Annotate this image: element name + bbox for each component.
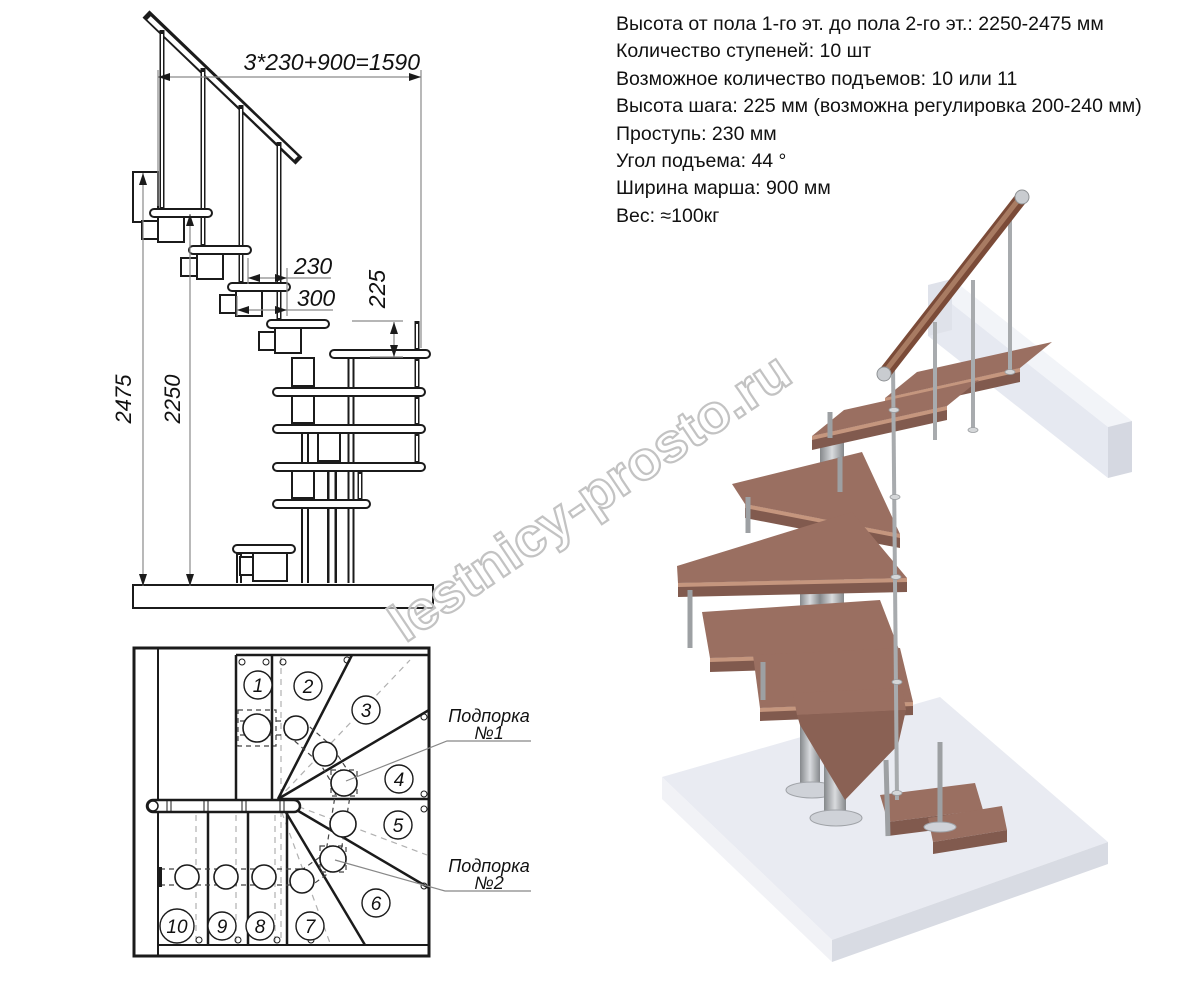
step-number-5: 5	[393, 816, 404, 837]
watermark-text: lestnicy-prosto.ru	[378, 341, 801, 654]
plan-view: 1 2 3 4 5 6 7 8 9 10 Подпорка №1 Подпорк…	[134, 648, 531, 956]
dimension-label-230: 230	[293, 253, 333, 279]
elevation-bottom-step	[233, 545, 295, 583]
elevation-view: 3*230+900=1590 2475 2250 230 300 225	[111, 14, 433, 608]
screenshot-root: Высота от пола 1-го эт. до пола 2-го эт.…	[0, 0, 1191, 993]
step-number-7: 7	[305, 917, 317, 938]
dimension-label-300: 300	[297, 285, 336, 311]
dimension-label-total-run: 3*230+900=1590	[243, 49, 420, 75]
step-number-2: 2	[302, 677, 314, 698]
step-number-8: 8	[255, 917, 266, 938]
dimension-label-2250: 2250	[160, 374, 185, 425]
elevation-lower-flight	[273, 321, 430, 583]
step-number-4: 4	[394, 770, 405, 791]
drawing-canvas: 3*230+900=1590 2475 2250 230 300 225	[0, 0, 1191, 993]
dimension-label-225: 225	[364, 270, 390, 310]
dimension-label-2475: 2475	[111, 374, 136, 425]
step-number-10: 10	[166, 917, 188, 938]
support-label-1-line2: №1	[474, 723, 504, 743]
support-label-2-line2: №2	[474, 873, 504, 893]
step-number-3: 3	[361, 701, 372, 722]
elevation-step-modules	[142, 209, 329, 353]
render-3d-view	[662, 190, 1132, 962]
step-number-6: 6	[371, 894, 382, 915]
plan-chain-wall-anchor	[158, 867, 162, 887]
step-number-9: 9	[217, 917, 228, 938]
step-number-1: 1	[253, 676, 264, 697]
plan-handrail	[147, 800, 300, 812]
